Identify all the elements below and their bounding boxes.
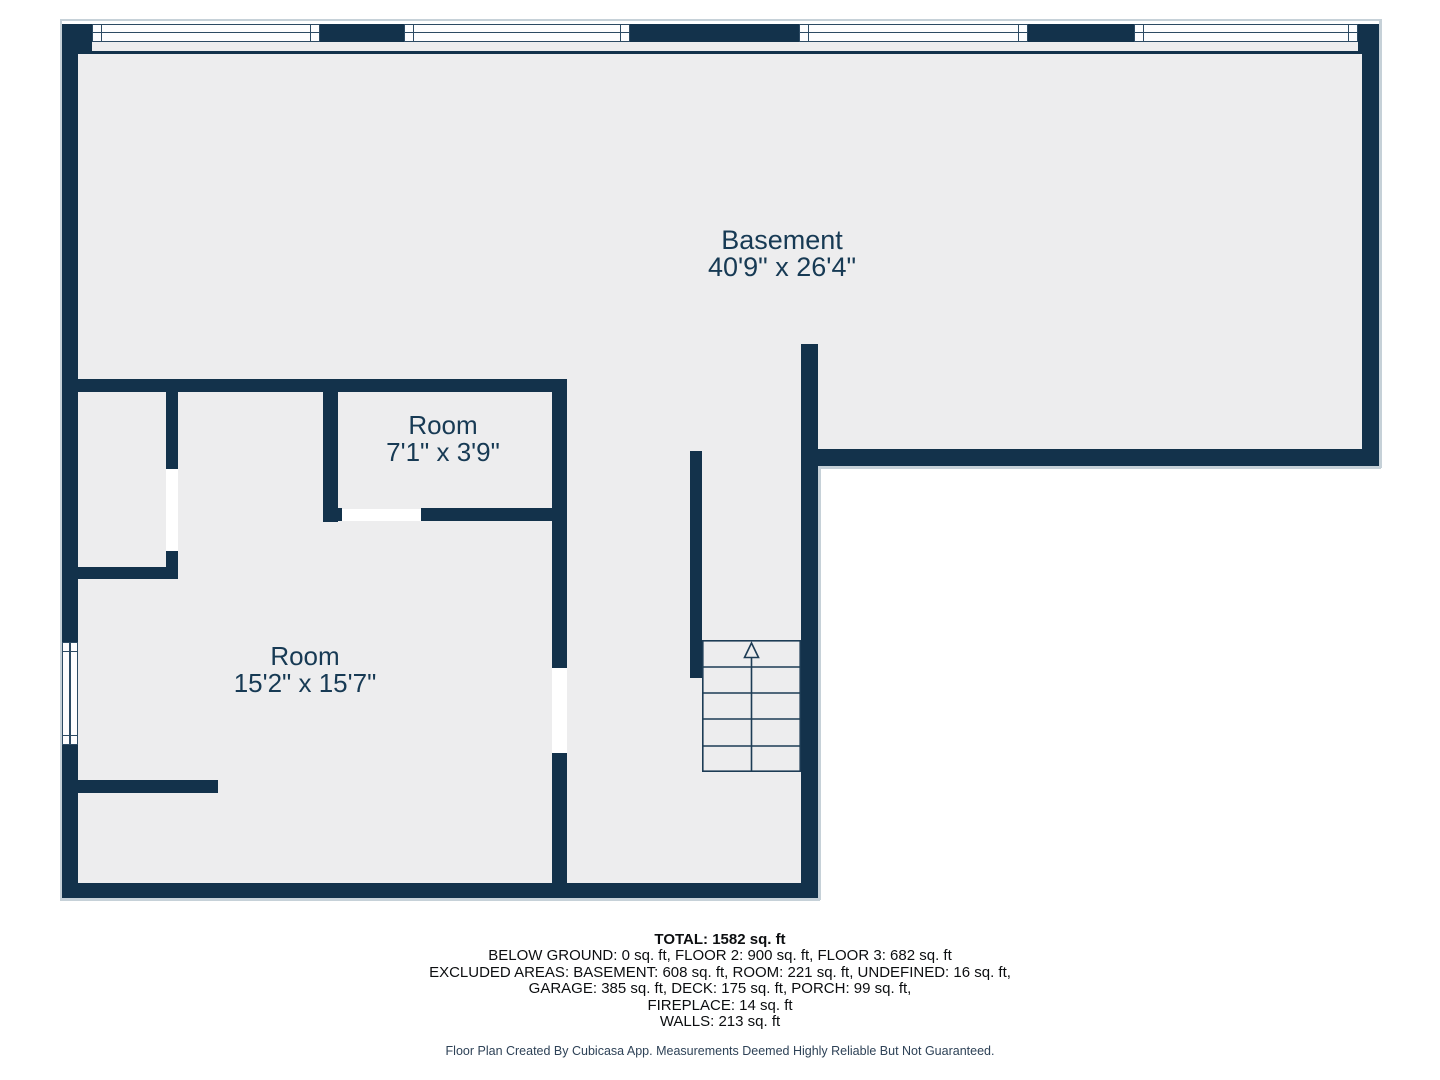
wall-left: [62, 24, 78, 898]
summary-line: EXCLUDED AREAS: BASEMENT: 608 sq. ft, RO…: [0, 965, 1440, 981]
outline-basement-bottom: [818, 466, 1381, 469]
summary-line: FIREPLACE: 14 sq. ft: [0, 998, 1440, 1014]
wall-hall-upper: [552, 392, 567, 668]
window: [1134, 24, 1358, 42]
room-label-large-room: Room 15'2" x 15'7": [234, 643, 377, 697]
wall-right: [1362, 24, 1379, 466]
wall-basement-bottom: [801, 449, 1379, 466]
wall-stairwell: [690, 451, 702, 678]
summary-total: TOTAL: 1582 sq. ft: [0, 932, 1440, 948]
outline-bottom: [60, 898, 821, 901]
wall-bottom: [62, 883, 818, 898]
wall-small-room-left: [323, 392, 338, 522]
window: [62, 642, 78, 745]
wall-top-inner-line: [78, 51, 1362, 54]
wall-hall-lower: [552, 753, 567, 883]
room-dimensions: 40'9" x 26'4": [708, 254, 856, 281]
room-label-small-room: Room 7'1" x 3'9": [386, 412, 500, 466]
outline-central: [818, 466, 821, 900]
window: [404, 24, 630, 42]
outline-right: [1379, 19, 1382, 469]
summary-line: WALLS: 213 sq. ft: [0, 1014, 1440, 1030]
door-opening-hall: [552, 668, 567, 753]
wall-small-room-bottom-left: [323, 508, 342, 521]
floor-plan-page: { "colors": { "wall": "#13324b", "floor"…: [0, 0, 1440, 1080]
room-dimensions: 15'2" x 15'7": [234, 670, 377, 697]
room-name: Room: [234, 643, 377, 670]
wall-closet-bottom: [62, 567, 178, 579]
summary-line: BELOW GROUND: 0 sq. ft, FLOOR 2: 900 sq.…: [0, 948, 1440, 964]
wall-central: [801, 344, 818, 898]
window: [92, 24, 320, 42]
wall-small-room-bottom-right: [421, 508, 567, 521]
room-label-basement: Basement 40'9" x 26'4": [708, 227, 856, 281]
door-opening-small-room: [342, 509, 421, 521]
floor-plan: Basement 40'9" x 26'4" Room 7'1" x 3'9" …: [0, 0, 1440, 1080]
wall-divider-horizontal: [62, 379, 567, 392]
room-name: Basement: [708, 227, 856, 254]
outline-top: [62, 19, 1379, 22]
wall-stub-left: [62, 780, 218, 793]
summary-line: GARAGE: 385 sq. ft, DECK: 175 sq. ft, PO…: [0, 981, 1440, 997]
wall-closet-right-upper: [166, 392, 178, 469]
staircase-drawing: [702, 640, 801, 772]
door-opening-closet: [166, 469, 178, 551]
cubicasa-footer-note: Floor Plan Created By Cubicasa App. Meas…: [0, 1043, 1440, 1059]
stairs-up-arrow-icon: [745, 643, 759, 658]
window: [799, 24, 1028, 42]
staircase: [702, 640, 801, 772]
room-dimensions: 7'1" x 3'9": [386, 439, 500, 466]
area-summary: TOTAL: 1582 sq. ft BELOW GROUND: 0 sq. f…: [0, 932, 1440, 1060]
room-name: Room: [386, 412, 500, 439]
